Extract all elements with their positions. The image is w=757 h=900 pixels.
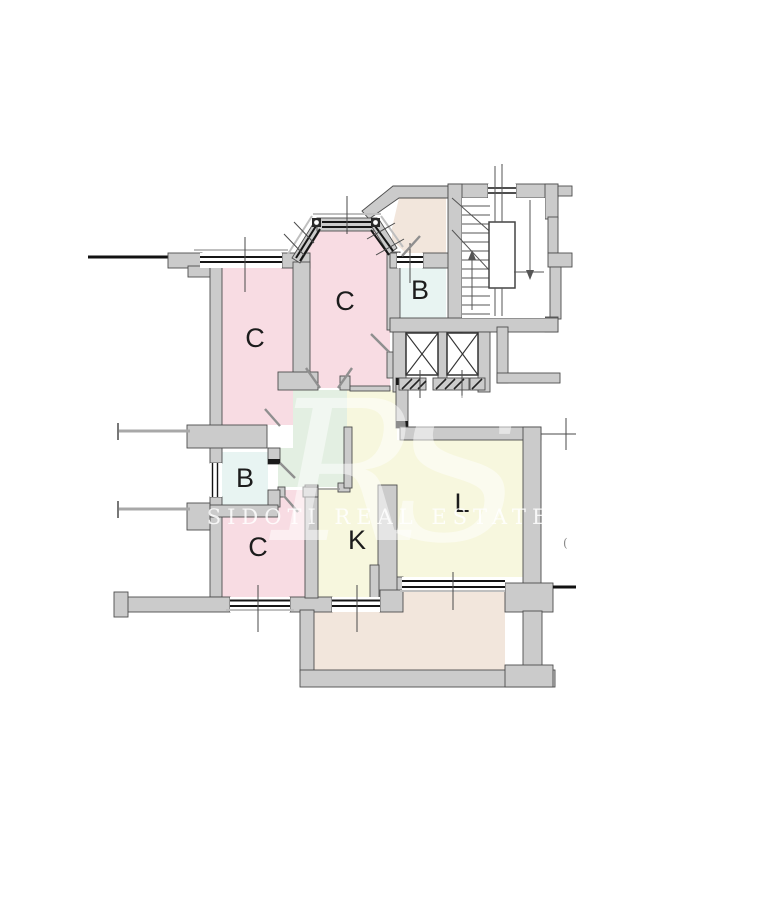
floor-plan-drawing: C C B B C K L ( RS SIDOTI REAL ESTATE bbox=[0, 0, 757, 900]
room-label-c-top-left: C bbox=[245, 323, 265, 353]
room-label-c-bottom: C bbox=[248, 532, 268, 562]
room-label-c-top-middle: C bbox=[335, 286, 355, 316]
room-label-b-bottom: B bbox=[236, 463, 254, 493]
balcony-pillar-top bbox=[505, 583, 553, 612]
stair-newel-box bbox=[489, 222, 515, 288]
floor-plan-page: C C B B C K L ( RS SIDOTI REAL ESTATE bbox=[0, 0, 757, 900]
vestibule-fill bbox=[392, 198, 446, 260]
watermark-monogram: RS bbox=[269, 359, 516, 586]
room-label-b-top: B bbox=[411, 275, 429, 305]
stray-mark: ( bbox=[563, 536, 568, 550]
watermark-brand-text: SIDOTI REAL ESTATE bbox=[207, 505, 554, 529]
